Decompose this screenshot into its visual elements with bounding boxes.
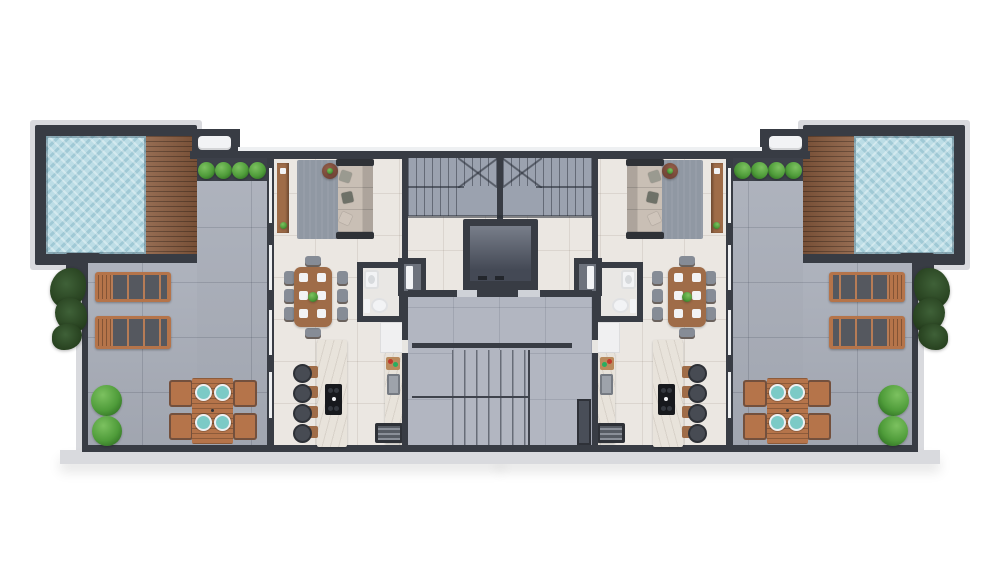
cooktop-knob [664, 397, 668, 401]
stair-bottom-edge [408, 215, 592, 218]
dining-chair [652, 289, 663, 304]
sun-lounger [829, 316, 905, 349]
console-decor [714, 168, 720, 174]
dining-chair [652, 307, 663, 322]
glass-panel [728, 168, 731, 223]
core-wall [402, 158, 408, 262]
stair-side-rail [528, 350, 530, 445]
door-opening [592, 340, 598, 353]
place-setting [692, 291, 701, 300]
entry-door [587, 266, 594, 289]
dining-chair [679, 256, 695, 267]
core-wall [592, 158, 598, 262]
planter-bush [785, 162, 802, 179]
table-centerpiece [682, 292, 692, 302]
teal-plate [769, 414, 786, 431]
side-table-plant [667, 168, 673, 174]
grill-grate [600, 426, 622, 440]
glass-panel [728, 245, 731, 290]
winder-treads [502, 158, 542, 188]
bathroom-cabinet [597, 322, 620, 353]
dining-chair [652, 271, 663, 286]
lounger-slats [889, 319, 902, 346]
hall-door-gap [518, 290, 540, 297]
planter-bush [751, 162, 768, 179]
elevator-cab [470, 226, 531, 281]
basin-bowl [625, 275, 632, 284]
place-setting [692, 273, 701, 282]
vegetable [602, 362, 607, 367]
lounger-slats [889, 275, 902, 299]
dining-chair [705, 289, 716, 304]
place-setting [674, 309, 683, 318]
dining-chair [705, 307, 716, 322]
terrace-bush [878, 385, 909, 416]
place-setting [692, 309, 701, 318]
dining-chair [705, 271, 716, 286]
elevator-door-leaf [495, 276, 504, 280]
vegetable [607, 359, 612, 364]
outdoor-chair [743, 413, 767, 440]
sofa-pillow [646, 191, 659, 204]
stair-landing [462, 186, 498, 216]
winder-treads [458, 158, 498, 188]
burner [667, 388, 672, 393]
burner [661, 406, 666, 411]
burner [661, 388, 666, 393]
glass-panel [728, 310, 731, 355]
console-plant [713, 222, 720, 229]
terrace-bottom-wall [598, 445, 918, 452]
entry-door [406, 266, 413, 289]
umbrella-hole [786, 409, 789, 412]
stair-guard-rail [412, 343, 572, 348]
lounger-fabric [833, 319, 889, 346]
kitchen-sink [600, 374, 613, 395]
outdoor-chair [743, 380, 767, 407]
duplex-stair-left [408, 158, 498, 216]
planter-bush [768, 162, 785, 179]
terrace-bush [878, 416, 908, 446]
sun-lounger [829, 272, 905, 302]
sofa-armrest [626, 159, 664, 166]
core-slab-edge [380, 452, 620, 464]
core-bottom-wall [395, 445, 605, 452]
flight-divider [408, 186, 464, 188]
bar-stool [688, 404, 707, 423]
core-wall [592, 294, 598, 340]
flight-divider [536, 186, 592, 188]
hall-door-gap [457, 290, 477, 297]
stair-landing [502, 186, 538, 216]
floor-plan-render [0, 0, 1000, 563]
teal-plate [769, 384, 786, 401]
pool-bench [769, 136, 802, 150]
dining-chair [679, 328, 695, 339]
stair-divider-wall [497, 158, 503, 220]
bar-stool [688, 424, 707, 443]
burner [667, 406, 672, 411]
outdoor-chair [807, 380, 831, 407]
core-wall [592, 353, 598, 445]
swimming-pool [854, 136, 954, 254]
bar-stool [688, 364, 707, 383]
place-setting [674, 273, 683, 282]
outdoor-chair [807, 413, 831, 440]
stair-mid-divider [412, 396, 528, 398]
hall-service-door [577, 399, 591, 445]
teal-plate [788, 384, 805, 401]
sofa-armrest [626, 232, 664, 239]
teal-plate [788, 414, 805, 431]
toilet-tank [630, 299, 636, 313]
toilet-bowl [612, 298, 629, 313]
elevator-door-leaf [478, 276, 487, 280]
lounger-fabric [833, 275, 889, 299]
planter-bush [734, 162, 751, 179]
bar-stool [688, 384, 707, 403]
hall-top-wall [408, 290, 592, 297]
pool-deck [803, 136, 854, 254]
duplex-stair-right [502, 158, 592, 216]
glass-panel [728, 372, 731, 418]
